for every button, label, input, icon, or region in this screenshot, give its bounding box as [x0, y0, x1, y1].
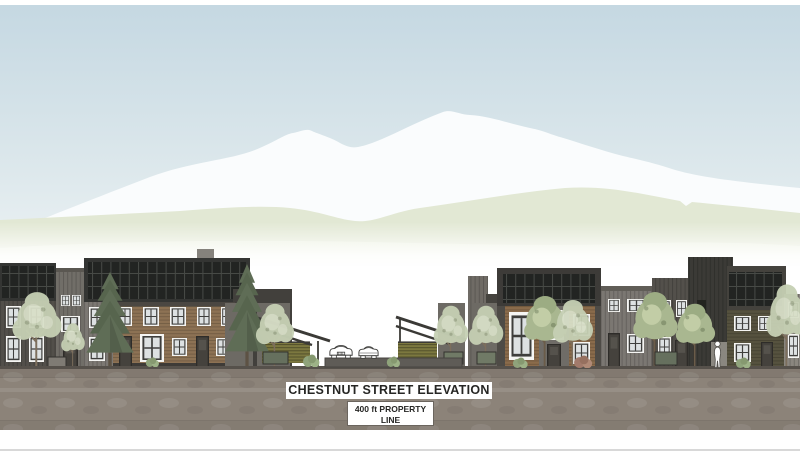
property-line-label-line1: 400 ft PROPERTY: [348, 404, 433, 415]
building-left-tower: [56, 268, 84, 368]
elevation-drawing-canvas: CHESTNUT STREET ELEVATION 400 ft PROPERT…: [0, 0, 800, 474]
property-line-label: 400 ft PROPERTY LINE: [347, 401, 434, 426]
property-line-label-line2: LINE: [348, 415, 433, 426]
elevation-title-text: CHESTNUT STREET ELEVATION: [288, 383, 490, 397]
building-left-brown: [113, 302, 235, 368]
pedestrian: [714, 341, 720, 367]
elevation-title: CHESTNUT STREET ELEVATION: [286, 382, 492, 399]
bottom-rule-line: [0, 449, 800, 451]
